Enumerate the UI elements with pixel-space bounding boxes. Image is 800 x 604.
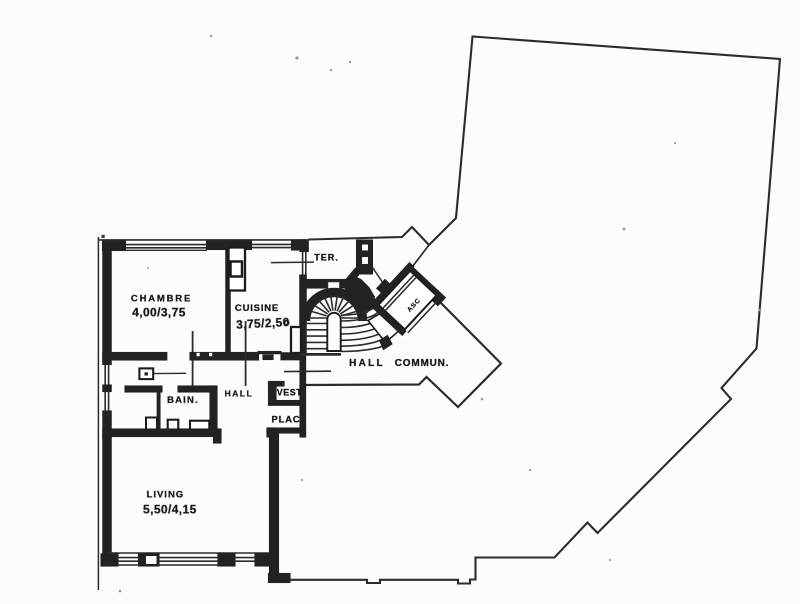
svg-text:HALL: HALL xyxy=(349,358,385,369)
svg-text:3,75/2,50: 3,75/2,50 xyxy=(236,315,290,332)
svg-text:BAIN.: BAIN. xyxy=(167,395,199,406)
svg-text:PLAC: PLAC xyxy=(271,414,300,425)
svg-text:CUISINE: CUISINE xyxy=(235,303,279,314)
svg-text:HALL: HALL xyxy=(225,388,254,398)
svg-text:4,00/3,75: 4,00/3,75 xyxy=(132,305,186,319)
svg-text:COMMUN.: COMMUN. xyxy=(395,358,449,369)
svg-text:CHAMBRE: CHAMBRE xyxy=(131,293,192,304)
svg-text:TER.: TER. xyxy=(314,252,339,262)
svg-text:LIVING: LIVING xyxy=(147,489,185,500)
svg-text:VEST: VEST xyxy=(277,387,303,397)
svg-text:5,50/4,15: 5,50/4,15 xyxy=(143,502,197,516)
